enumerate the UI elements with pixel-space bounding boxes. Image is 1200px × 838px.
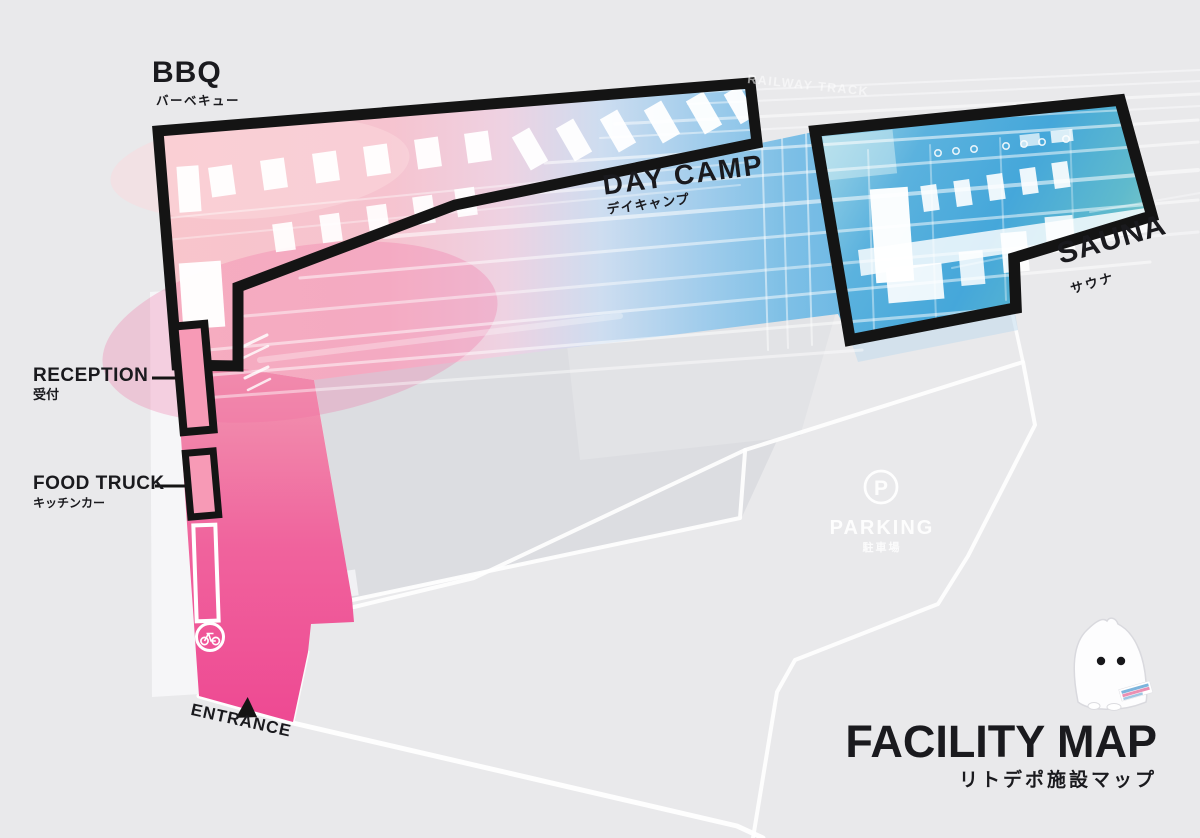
page-subtitle: リトデポ施設マップ [959, 771, 1157, 790]
parking-label-jp: 駐車場 [782, 543, 982, 554]
svg-text:P: P [874, 477, 888, 500]
bbq-label: BBQ [152, 58, 222, 88]
sauna-light-corner [823, 129, 897, 180]
bbq-label-jp: バーベキュー [156, 95, 240, 108]
page-title: FACILITY MAP [845, 719, 1157, 764]
food-truck-label: FOOD TRUCK [33, 474, 165, 493]
mascot-eye [1097, 657, 1105, 665]
food-truck-booth [185, 451, 218, 517]
mascot-eye [1117, 657, 1125, 665]
facility-map-page: P BBQ バーベキュー DAY CAMP デイキャンプ SAUNA サウナ R… [0, 0, 1200, 838]
parking-label: PARKING [782, 518, 982, 538]
reception-label: RECEPTION [33, 366, 148, 385]
reception-label-jp: 受付 [33, 388, 59, 401]
facility-map-canvas: P [0, 0, 1200, 838]
food-truck-label-jp: キッチンカー [33, 497, 105, 509]
